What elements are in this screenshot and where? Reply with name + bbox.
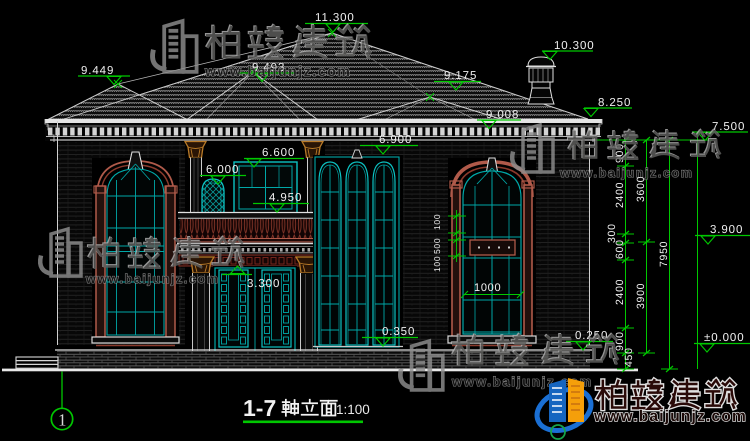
svg-text:2400: 2400	[614, 279, 626, 305]
svg-text:7950: 7950	[658, 241, 670, 267]
svg-text:11.300: 11.300	[315, 12, 355, 24]
svg-text:6.600: 6.600	[262, 147, 295, 159]
svg-text:www.baijunjz.com: www.baijunjz.com	[85, 272, 219, 286]
svg-text:±0.000: ±0.000	[704, 332, 745, 344]
svg-text:500: 500	[432, 238, 442, 254]
svg-text:1: 1	[58, 411, 67, 430]
svg-text:www.baijunjz.com: www.baijunjz.com	[204, 63, 351, 79]
svg-text:1-7: 1-7	[243, 395, 276, 421]
svg-text:3900: 3900	[635, 283, 647, 309]
svg-text:10.300: 10.300	[554, 40, 595, 52]
svg-text:4.950: 4.950	[269, 192, 302, 204]
svg-text:450: 450	[623, 347, 635, 367]
svg-text:1000: 1000	[474, 282, 501, 294]
svg-text:8.250: 8.250	[598, 97, 631, 109]
svg-text:0.350: 0.350	[382, 326, 415, 338]
svg-text:6.000: 6.000	[206, 164, 239, 176]
svg-text:2400: 2400	[614, 182, 626, 208]
svg-text:100: 100	[432, 256, 442, 272]
svg-text:1:100: 1:100	[336, 402, 370, 417]
svg-text:9.008: 9.008	[486, 109, 519, 121]
svg-text:6.900: 6.900	[379, 134, 412, 146]
svg-text:600: 600	[614, 239, 626, 259]
svg-text:www.baijunjz.com: www.baijunjz.com	[593, 408, 747, 425]
svg-text:100: 100	[432, 214, 442, 230]
svg-text:9.449: 9.449	[81, 65, 114, 77]
svg-text:9.175: 9.175	[444, 70, 477, 82]
svg-text:3.300: 3.300	[247, 278, 280, 290]
svg-text:7.500: 7.500	[712, 121, 745, 133]
svg-text:www.baijunjz.com: www.baijunjz.com	[559, 166, 693, 180]
svg-text:3.900: 3.900	[710, 224, 743, 236]
